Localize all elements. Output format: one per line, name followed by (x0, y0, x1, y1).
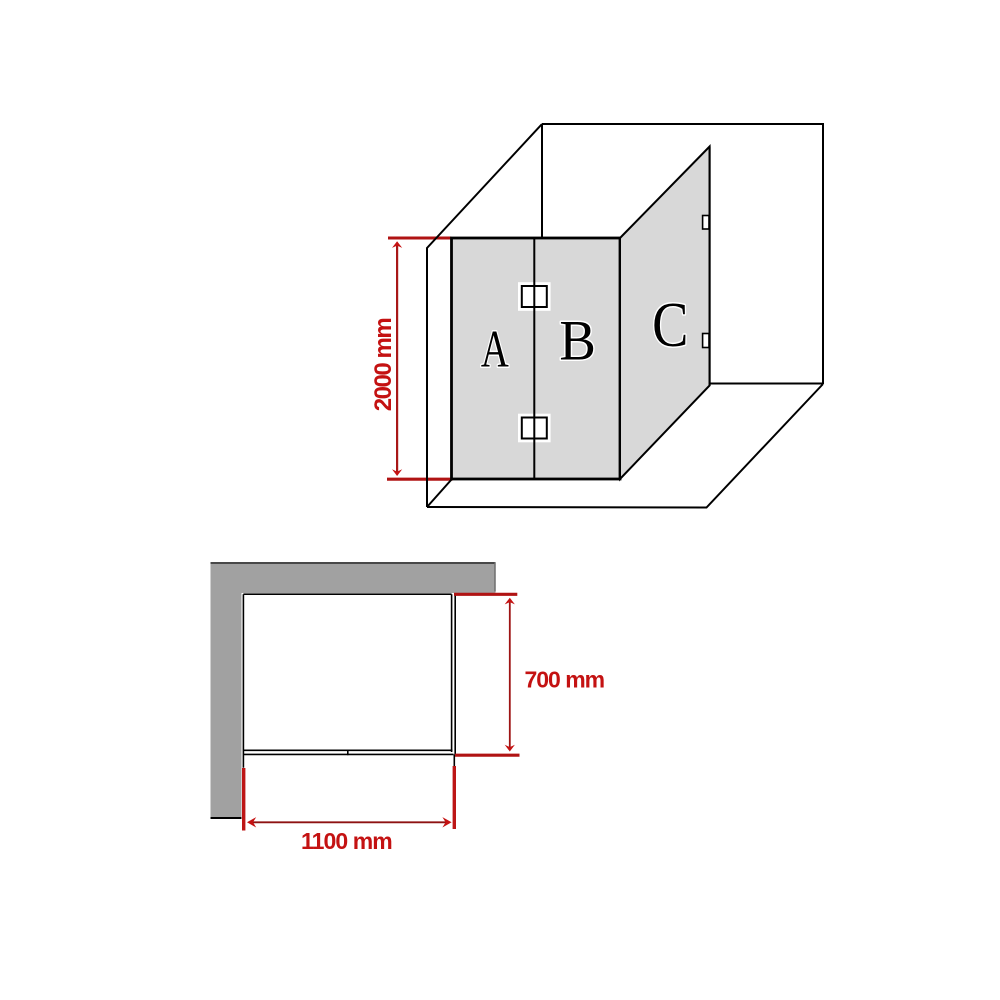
svg-text:A: A (481, 321, 509, 379)
svg-text:C: C (652, 289, 688, 360)
svg-text:B: B (559, 310, 595, 373)
svg-text:2000 mm: 2000 mm (370, 319, 397, 412)
svg-text:700 mm: 700 mm (524, 666, 604, 692)
svg-text:1100 mm: 1100 mm (301, 828, 392, 854)
